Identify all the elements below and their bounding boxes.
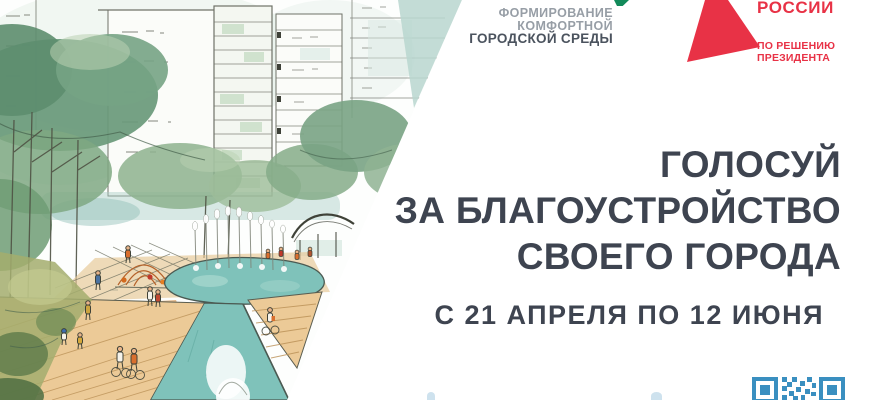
np-logo-tagline: ПО РЕШЕНИЮ ПРЕЗИДЕНТА (757, 41, 835, 64)
headline-line-2: ЗА БЛАГОУСТРОЙСТВО (395, 188, 841, 234)
np-tagline-line-2: ПРЕЗИДЕНТА (757, 53, 835, 65)
program-logo-line-1: ФОРМИРОВАНИЕ (469, 7, 613, 20)
cutoff-text-mark (651, 392, 662, 400)
headline-line-1: ГОЛОСУЙ (395, 142, 841, 188)
cutoff-text-mark (427, 392, 435, 400)
program-logo-line-3: ГОРОДСКОЙ СРЕДЫ (469, 33, 613, 46)
program-logo: ФОРМИРОВАНИЕ КОМФОРТНОЙ ГОРОДСКОЙ СРЕДЫ (469, 7, 613, 46)
national-projects-logo: РОССИИ ПО РЕШЕНИЮ ПРЕЗИДЕНТА (680, 0, 870, 70)
voting-dates: С 21 АПРЕЛЯ ПО 12 ИЮНЯ (434, 300, 824, 331)
voting-poster: ФОРМИРОВАНИЕ КОМФОРТНОЙ ГОРОДСКОЙ СРЕДЫ … (0, 0, 870, 400)
red-arrow-icon (685, 0, 763, 64)
headline-line-3: СВОЕГО ГОРОДА (395, 234, 841, 280)
np-logo-country: РОССИИ (757, 0, 834, 18)
qr-code (752, 377, 845, 400)
park-illustration (0, 0, 462, 400)
program-logo-mark-icon (614, 0, 629, 6)
headline: ГОЛОСУЙ ЗА БЛАГОУСТРОЙСТВО СВОЕГО ГОРОДА (395, 142, 841, 280)
np-tagline-line-1: ПО РЕШЕНИЮ (757, 41, 835, 53)
